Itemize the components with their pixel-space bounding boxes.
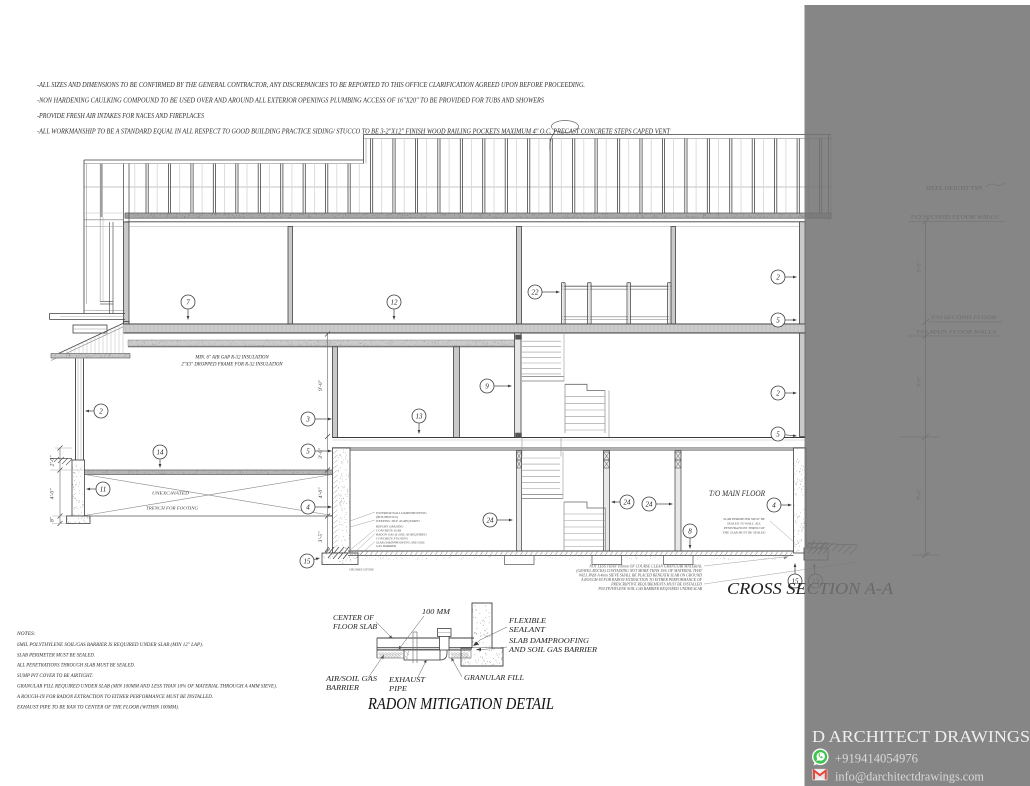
svg-text:AND SOIL GAS BARRIER: AND SOIL GAS BARRIER (508, 646, 598, 654)
svg-text:NOT LESS THAN 100mm OF COURSE: NOT LESS THAN 100mm OF COURSE CLEAN GRAN… (588, 565, 702, 569)
svg-text:7: 7 (186, 298, 190, 306)
svg-text:22: 22 (532, 288, 540, 296)
svg-text:3'-0": 3'-0" (318, 447, 324, 460)
svg-text:AIR/SOIL GAS: AIR/SOIL GAS (325, 675, 378, 683)
svg-text:SUMP PIT COVER TO BE AIRTIGHT.: SUMP PIT COVER TO BE AIRTIGHT. (17, 673, 93, 679)
svg-text:6MIL POLYTHYLENE SOIL/GAS BARR: 6MIL POLYTHYLENE SOIL/GAS BARRIER IS REQ… (17, 641, 203, 648)
svg-text:9: 9 (485, 382, 489, 390)
svg-text:RADON MITIGATION DETAIL: RADON MITIGATION DETAIL (367, 694, 554, 713)
svg-text:-NON HARDENING CAULKING COMPO: -NON HARDENING CAULKING COMPOUND TO BE U… (37, 97, 544, 105)
svg-text:D ARCHITECT DRAWINGS: D ARCHITECT DRAWINGS (812, 727, 1030, 746)
svg-text:3'-5": 3'-5" (318, 531, 324, 544)
svg-text:3: 3 (305, 415, 310, 423)
svg-text:WILL PASS A 4mm SIEVE SHALL BE: WILL PASS A 4mm SIEVE SHALL BE PLACED BE… (579, 574, 702, 578)
svg-text:A ROUGH-IN FOR RADON EXTRACTIO: A ROUGH-IN FOR RADON EXTRACTION TO EITHE… (16, 694, 213, 700)
svg-text:4: 4 (306, 503, 310, 511)
svg-text:(GRAVEL ROCKS) CONTAINING NOT: (GRAVEL ROCKS) CONTAINING NOT MORE THAN … (576, 569, 703, 573)
svg-text:5: 5 (776, 316, 780, 324)
svg-text:4: 4 (772, 501, 776, 509)
svg-text:PENETRATIONS THROUGH: PENETRATIONS THROUGH (723, 526, 765, 530)
svg-text:24: 24 (646, 500, 654, 508)
svg-text:FLEXIBLE: FLEXIBLE (508, 617, 547, 625)
svg-text:FLOOR SLAB: FLOOR SLAB (332, 623, 378, 631)
svg-text:11: 11 (100, 485, 106, 493)
svg-text:THE SLAB MUST BE SEALED: THE SLAB MUST BE SEALED (723, 531, 766, 535)
svg-text:WEEPING TILE AS REQUIRED: WEEPING TILE AS REQUIRED (376, 519, 420, 523)
svg-text:A ROUGH-IN FOR RADON EXTRACTIO: A ROUGH-IN FOR RADON EXTRACTION TO EITHE… (580, 578, 703, 582)
svg-text:MIN. 6" AIR GAP R-32 INSULATIO: MIN. 6" AIR GAP R-32 INSULATION (194, 356, 269, 361)
svg-text:4'-0": 4'-0" (49, 488, 56, 500)
svg-text:GRANULAR FILL: GRANULAR FILL (464, 674, 524, 682)
svg-text:SLAB PERIMETER MUST BE: SLAB PERIMETER MUST BE (723, 517, 765, 521)
svg-text:SEALED TO WALL. ALL: SEALED TO WALL. ALL (727, 522, 761, 526)
svg-text:SEALANT: SEALANT (509, 626, 546, 634)
svg-text:TRENCH FOR FOOTING: TRENCH FOR FOOTING (146, 506, 199, 511)
svg-text:POLYETHYLENE SOIL GAS BARRIER: POLYETHYLENE SOIL GAS BARRIER REQUIRED U… (597, 587, 702, 591)
svg-text:24: 24 (624, 498, 632, 506)
svg-text:5: 5 (306, 447, 310, 455)
svg-text:12: 12 (391, 298, 399, 306)
svg-text:+919414054976: +919414054976 (835, 752, 918, 766)
svg-text:8: 8 (688, 527, 692, 535)
svg-text:24: 24 (487, 516, 495, 524)
svg-text:PRESCRIPTIVE REQUIREMENTS MUST: PRESCRIPTIVE REQUIREMENTS MUST BE INSTAL… (610, 583, 702, 587)
svg-text:4'-0": 4'-0" (317, 487, 324, 499)
svg-text:2'-0": 2'-0" (50, 455, 56, 467)
svg-text:15: 15 (304, 557, 312, 565)
svg-text:EXHAUST PIPE TO BE RAN TO CENT: EXHAUST PIPE TO BE RAN TO CENTER OF THE … (16, 704, 179, 711)
svg-text:GAS BARRIER: GAS BARRIER (376, 544, 396, 548)
svg-text:5: 5 (776, 430, 780, 438)
svg-text:2: 2 (776, 273, 780, 281)
svg-text:-ALL SIZES AND DIMENSIONS TO B: -ALL SIZES AND DIMENSIONS TO BE CONFIRME… (37, 81, 585, 89)
svg-text:-PROVIDE FRESH AIR INTAKES FOR: -PROVIDE FRESH AIR INTAKES FOR NACES AND… (37, 112, 204, 120)
svg-text:EXHAUST: EXHAUST (388, 676, 426, 684)
svg-text:ALL PENETRATIONS THROUGH SLAB: ALL PENETRATIONS THROUGH SLAB MUST BE SE… (16, 663, 135, 669)
svg-text:SLAB PERIMETER MUST BE SEALED.: SLAB PERIMETER MUST BE SEALED. (17, 653, 95, 659)
svg-text:9'-0": 9'-0" (318, 379, 324, 391)
svg-text:BARRIER: BARRIER (326, 684, 360, 692)
svg-text:2: 2 (776, 389, 780, 397)
svg-text:GRANULAR FILL REQUIRED UNDER S: GRANULAR FILL REQUIRED UNDER SLAB (MIN 1… (17, 683, 277, 690)
svg-text:13: 13 (416, 412, 424, 420)
svg-text:UNEXCAVATED: UNEXCAVATED (152, 491, 190, 496)
svg-text:CENTER OF: CENTER OF (333, 614, 375, 622)
svg-text:CRUSHED STONE: CRUSHED STONE (349, 568, 374, 572)
svg-text:T/O MAIN FLOOR: T/O MAIN FLOOR (709, 489, 765, 498)
svg-text:8": 8" (50, 516, 56, 522)
svg-text:2: 2 (99, 407, 103, 415)
svg-text:PIPE: PIPE (388, 685, 408, 693)
svg-text:NOTES:: NOTES: (16, 631, 36, 637)
svg-text:100 MM: 100 MM (422, 608, 451, 616)
svg-text:2"X3" DROPPED FRAME FOR R-32 I: 2"X3" DROPPED FRAME FOR R-32 INSULATION (181, 363, 283, 368)
svg-text:info@darchitectdrawings.com: info@darchitectdrawings.com (835, 770, 984, 784)
svg-text:14: 14 (157, 448, 165, 456)
svg-text:SLAB DAMPROOFING: SLAB DAMPROOFING (509, 637, 589, 645)
